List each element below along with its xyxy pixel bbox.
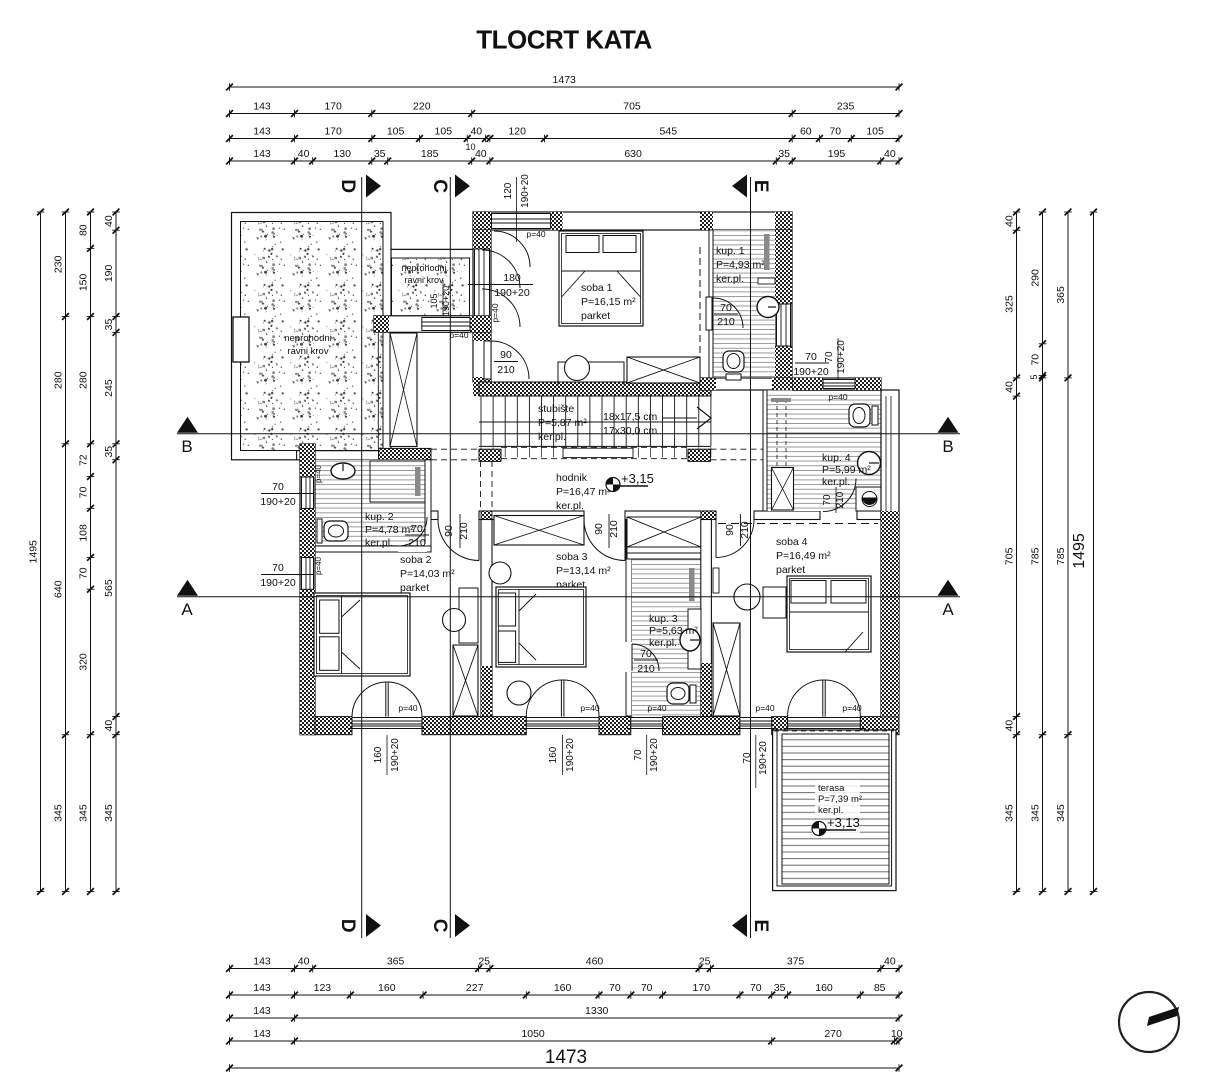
svg-text:p=40: p=40: [314, 464, 323, 483]
svg-text:70: 70: [609, 982, 621, 994]
svg-text:210: 210: [637, 663, 655, 675]
svg-text:365: 365: [387, 956, 405, 968]
svg-text:235: 235: [837, 101, 855, 113]
svg-text:parket: parket: [400, 582, 429, 594]
svg-text:90: 90: [593, 523, 605, 535]
svg-text:320: 320: [78, 653, 90, 671]
svg-text:160: 160: [554, 982, 572, 994]
svg-text:375: 375: [787, 956, 805, 968]
svg-text:170: 170: [324, 126, 342, 138]
svg-text:+3,13: +3,13: [827, 815, 860, 830]
svg-text:120: 120: [503, 182, 514, 199]
svg-text:18x17,5 cm: 18x17,5 cm: [603, 411, 658, 423]
svg-text:ker.pl.: ker.pl.: [716, 273, 744, 285]
svg-text:190+20: 190+20: [565, 738, 576, 772]
svg-text:143: 143: [253, 148, 271, 160]
svg-text:108: 108: [78, 524, 90, 542]
svg-text:P=16,49 m²: P=16,49 m²: [776, 550, 831, 562]
svg-text:565: 565: [103, 579, 115, 597]
svg-text:10: 10: [891, 1028, 903, 1040]
svg-text:P=4,93 m²: P=4,93 m²: [716, 259, 765, 271]
svg-text:160: 160: [373, 746, 384, 763]
svg-text:345: 345: [78, 804, 90, 822]
svg-text:705: 705: [1004, 547, 1016, 565]
svg-text:143: 143: [253, 1028, 271, 1040]
svg-text:85: 85: [874, 982, 886, 994]
svg-text:40: 40: [1004, 215, 1016, 227]
svg-text:160: 160: [548, 746, 559, 763]
svg-text:neprohodni: neprohodni: [284, 333, 332, 344]
svg-text:soba 1: soba 1: [581, 282, 613, 294]
svg-text:soba 4: soba 4: [776, 536, 808, 548]
svg-text:210: 210: [458, 522, 470, 540]
svg-text:25: 25: [478, 956, 490, 968]
svg-text:105: 105: [866, 126, 884, 138]
svg-text:345: 345: [1055, 804, 1067, 822]
svg-text:220: 220: [413, 101, 431, 113]
svg-text:B: B: [942, 437, 953, 456]
svg-text:ker.pl.: ker.pl.: [649, 637, 677, 649]
svg-text:345: 345: [1030, 804, 1042, 822]
svg-text:p=40: p=40: [755, 703, 774, 713]
svg-text:70: 70: [1030, 354, 1042, 366]
svg-text:E: E: [750, 180, 771, 193]
svg-text:195: 195: [828, 148, 846, 160]
svg-text:p=40: p=40: [842, 703, 861, 713]
svg-text:35: 35: [778, 148, 790, 160]
svg-text:A: A: [181, 600, 193, 619]
svg-text:90: 90: [443, 525, 455, 537]
svg-text:terasa: terasa: [818, 783, 845, 794]
svg-text:80: 80: [78, 224, 90, 236]
svg-text:ker.pl.: ker.pl.: [822, 476, 850, 488]
svg-text:70: 70: [633, 749, 644, 761]
svg-text:143: 143: [253, 956, 271, 968]
svg-text:hodnik: hodnik: [556, 472, 588, 484]
svg-text:70: 70: [829, 126, 841, 138]
svg-text:stubište: stubište: [538, 403, 574, 415]
svg-text:E: E: [750, 919, 771, 932]
svg-text:365: 365: [1055, 286, 1067, 304]
svg-text:160: 160: [378, 982, 396, 994]
svg-text:210: 210: [408, 537, 426, 549]
svg-text:p=40: p=40: [314, 556, 323, 575]
svg-text:185: 185: [421, 148, 439, 160]
svg-text:40: 40: [298, 956, 310, 968]
svg-text:785: 785: [1030, 547, 1042, 565]
svg-text:P=16,47 m²: P=16,47 m²: [556, 486, 611, 498]
svg-text:1473: 1473: [553, 74, 577, 86]
svg-text:P=5,99 m²: P=5,99 m²: [822, 464, 871, 476]
svg-text:parket: parket: [581, 310, 610, 322]
svg-text:70: 70: [641, 982, 653, 994]
svg-text:190+20: 190+20: [260, 496, 295, 508]
svg-text:70: 70: [720, 302, 732, 314]
svg-text:210: 210: [608, 520, 620, 538]
svg-text:120: 120: [508, 126, 526, 138]
svg-text:325: 325: [1004, 295, 1016, 313]
svg-text:parket: parket: [776, 564, 805, 576]
svg-text:P=16,15 m²: P=16,15 m²: [581, 296, 636, 308]
svg-text:70: 70: [822, 494, 833, 506]
svg-text:P=14,03 m²: P=14,03 m²: [400, 568, 455, 580]
svg-text:soba 3: soba 3: [556, 551, 588, 563]
svg-text:5: 5: [1029, 374, 1039, 379]
svg-text:143: 143: [253, 126, 271, 138]
svg-text:25: 25: [699, 956, 711, 968]
svg-text:143: 143: [253, 101, 271, 113]
svg-text:345: 345: [1004, 804, 1016, 822]
svg-text:P=13,14 m²: P=13,14 m²: [556, 565, 611, 577]
svg-text:40: 40: [475, 148, 487, 160]
svg-text:B: B: [181, 437, 192, 456]
svg-text:190+20: 190+20: [793, 366, 828, 378]
svg-text:123: 123: [314, 982, 332, 994]
svg-text:270: 270: [824, 1028, 842, 1040]
svg-text:60: 60: [800, 126, 812, 138]
svg-text:40: 40: [884, 956, 896, 968]
svg-text:35: 35: [103, 446, 115, 458]
svg-text:190+20: 190+20: [520, 174, 531, 208]
svg-text:70: 70: [272, 481, 284, 493]
svg-text:ker.pl.: ker.pl.: [556, 500, 584, 512]
svg-text:ravni krov: ravni krov: [287, 346, 328, 357]
svg-text:40: 40: [1004, 720, 1016, 732]
svg-text:1473: 1473: [545, 1047, 587, 1068]
svg-text:1495: 1495: [28, 540, 40, 564]
svg-text:p=40: p=40: [828, 392, 847, 402]
svg-text:ker.pl.: ker.pl.: [538, 431, 566, 443]
svg-text:35: 35: [774, 982, 786, 994]
svg-text:p=40: p=40: [398, 703, 417, 713]
svg-text:227: 227: [466, 982, 484, 994]
svg-text:190+20: 190+20: [390, 738, 401, 772]
svg-text:280: 280: [78, 371, 90, 389]
svg-text:p=40: p=40: [526, 229, 545, 239]
svg-text:545: 545: [660, 126, 678, 138]
svg-text:neprohodni: neprohodni: [401, 263, 446, 273]
svg-text:150: 150: [78, 273, 90, 291]
svg-text:190+20: 190+20: [494, 287, 529, 299]
svg-text:785: 785: [1055, 547, 1067, 565]
svg-text:kup. 4: kup. 4: [822, 452, 851, 464]
svg-text:345: 345: [53, 804, 65, 822]
svg-text:190+20: 190+20: [758, 741, 769, 775]
svg-text:630: 630: [624, 148, 642, 160]
svg-text:p=40: p=40: [580, 703, 599, 713]
svg-text:kup. 1: kup. 1: [716, 245, 745, 257]
svg-text:90: 90: [724, 524, 736, 536]
svg-text:A: A: [942, 600, 954, 619]
svg-text:70: 70: [78, 567, 90, 579]
svg-text:soba 2: soba 2: [400, 554, 432, 566]
svg-text:190+20: 190+20: [260, 577, 295, 589]
svg-text:245: 245: [103, 379, 115, 397]
svg-text:210: 210: [497, 364, 515, 376]
svg-text:35: 35: [374, 148, 386, 160]
svg-text:p=40: p=40: [449, 330, 468, 340]
svg-text:640: 640: [53, 580, 65, 598]
svg-text:P=4,78 m²: P=4,78 m²: [365, 524, 414, 536]
svg-text:kup. 2: kup. 2: [365, 511, 394, 523]
svg-text:190+20: 190+20: [441, 286, 451, 316]
svg-text:70: 70: [640, 648, 652, 660]
svg-text:40: 40: [1004, 381, 1016, 393]
svg-text:460: 460: [586, 956, 604, 968]
svg-text:280: 280: [53, 371, 65, 389]
svg-text:70: 70: [742, 752, 753, 764]
svg-text:180: 180: [503, 272, 521, 284]
svg-text:170: 170: [324, 101, 342, 113]
svg-text:+3,15: +3,15: [621, 471, 654, 486]
svg-text:1050: 1050: [521, 1028, 545, 1040]
svg-text:17x30,0 cm: 17x30,0 cm: [603, 425, 658, 437]
svg-text:105: 105: [429, 293, 439, 308]
svg-text:143: 143: [253, 982, 271, 994]
svg-text:D: D: [337, 179, 358, 193]
svg-text:70: 70: [272, 562, 284, 574]
svg-text:40: 40: [103, 215, 115, 227]
svg-text:p=40: p=40: [647, 703, 666, 713]
svg-text:160: 160: [815, 982, 833, 994]
svg-text:190: 190: [103, 264, 115, 282]
svg-text:ravni krov: ravni krov: [404, 275, 444, 285]
svg-text:40: 40: [470, 126, 482, 138]
svg-text:70: 70: [750, 982, 762, 994]
svg-text:70: 70: [824, 351, 835, 363]
svg-text:1495: 1495: [1071, 533, 1088, 569]
svg-text:40: 40: [103, 720, 115, 732]
svg-text:35: 35: [103, 319, 115, 331]
svg-text:130: 130: [333, 148, 351, 160]
svg-text:190+20: 190+20: [649, 738, 660, 772]
svg-text:1330: 1330: [585, 1005, 609, 1017]
svg-text:105: 105: [435, 126, 453, 138]
svg-text:40: 40: [884, 148, 896, 160]
svg-text:TLOCRT KATA: TLOCRT KATA: [476, 25, 652, 55]
svg-text:C: C: [429, 179, 450, 193]
svg-text:210: 210: [717, 316, 735, 328]
svg-text:D: D: [337, 919, 358, 933]
svg-text:210: 210: [835, 491, 846, 508]
svg-text:105: 105: [387, 126, 405, 138]
svg-text:70: 70: [805, 351, 817, 363]
svg-text:kup. 3: kup. 3: [649, 613, 678, 625]
svg-text:P=7,39 m²: P=7,39 m²: [818, 794, 862, 805]
svg-text:190+20: 190+20: [836, 340, 847, 374]
svg-text:70: 70: [78, 486, 90, 498]
svg-text:345: 345: [103, 804, 115, 822]
svg-text:P=5,63 m²: P=5,63 m²: [649, 625, 698, 637]
svg-text:ker.pl.: ker.pl.: [365, 537, 393, 549]
svg-text:705: 705: [623, 101, 641, 113]
svg-text:230: 230: [53, 255, 65, 273]
svg-text:143: 143: [253, 1005, 271, 1017]
svg-text:P=5,87 m²: P=5,87 m²: [538, 417, 587, 429]
svg-text:290: 290: [1030, 269, 1042, 287]
svg-text:40: 40: [298, 148, 310, 160]
svg-text:C: C: [429, 919, 450, 933]
svg-text:90: 90: [500, 349, 512, 361]
svg-text:170: 170: [693, 982, 711, 994]
svg-text:72: 72: [78, 454, 90, 466]
